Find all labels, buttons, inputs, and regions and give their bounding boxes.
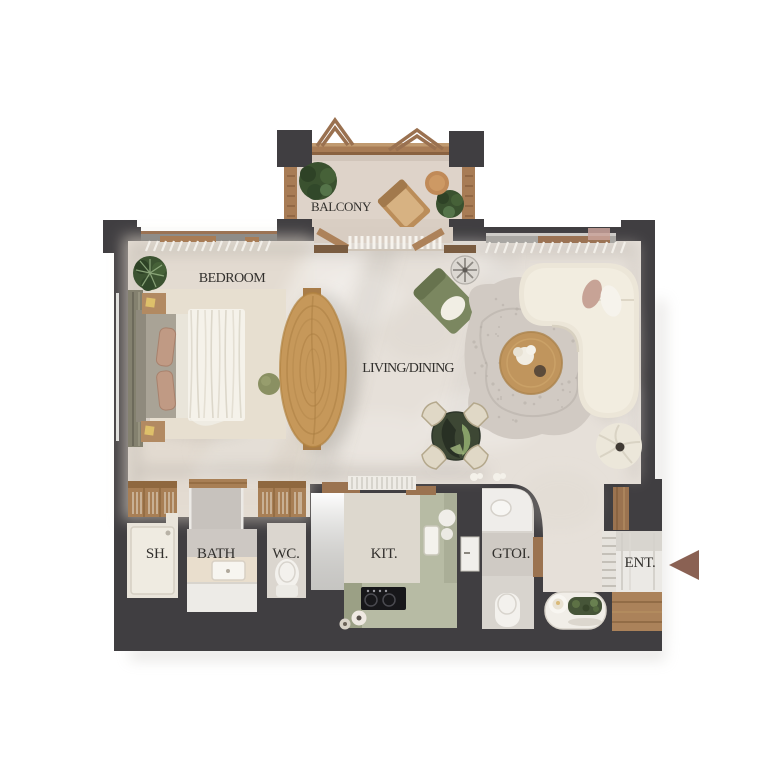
- svg-text:WC.: WC.: [272, 546, 299, 562]
- svg-text:BATH: BATH: [197, 546, 236, 562]
- svg-text:GTOI.: GTOI.: [492, 546, 530, 562]
- svg-text:LIVING/DINING: LIVING/DINING: [362, 361, 454, 376]
- svg-text:SH.: SH.: [146, 546, 168, 562]
- svg-text:KIT.: KIT.: [371, 546, 398, 562]
- svg-text:BEDROOM: BEDROOM: [199, 271, 267, 286]
- svg-text:ENT.: ENT.: [625, 555, 656, 571]
- svg-text:BALCONY: BALCONY: [311, 199, 372, 214]
